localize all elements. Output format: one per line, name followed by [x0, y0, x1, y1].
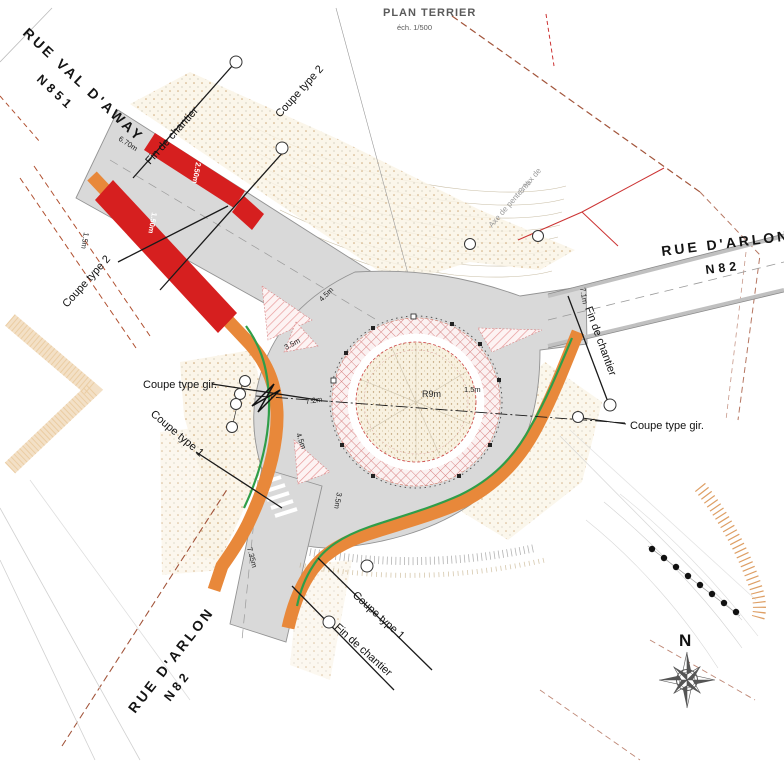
plan-title: PLAN TERRIER: [383, 7, 476, 19]
compass-north-label: N: [679, 631, 691, 650]
label-coupe-gir-right: Coupe type gir.: [630, 420, 704, 432]
site-plan-svg: PLAN TERRIER éch. 1/500 RUE VAL D'AWAY N…: [0, 0, 784, 762]
plan-scale: éch. 1/500: [397, 23, 432, 32]
dim-apron: 1.5m: [464, 385, 481, 394]
label-coupe-gir-left: Coupe type gir.: [143, 379, 217, 391]
plan-terrier-drawing: PLAN TERRIER éch. 1/500 RUE VAL D'AWAY N…: [0, 0, 784, 762]
dim-roundabout-radius: R9m: [422, 389, 441, 399]
